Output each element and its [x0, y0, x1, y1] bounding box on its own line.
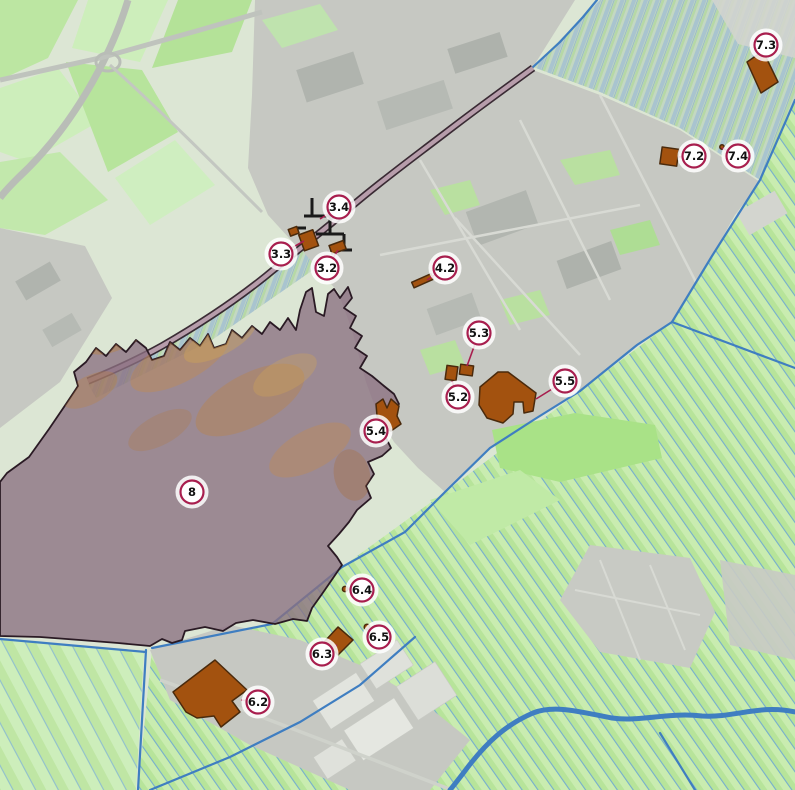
map-marker-6-4[interactable]: 6.4 — [348, 576, 376, 604]
marker-label: 6.4 — [352, 583, 372, 597]
map-marker-5-4[interactable]: 5.4 — [362, 417, 390, 445]
marker-label: 3.2 — [317, 261, 337, 275]
map-marker-5-2[interactable]: 5.2 — [444, 381, 472, 411]
map-marker-7-3[interactable]: 7.3 — [752, 31, 780, 61]
object-5-2[interactable] — [445, 365, 458, 380]
marker-label: 3.4 — [329, 200, 349, 214]
marker-label: 8 — [188, 485, 196, 499]
marker-label: 5.3 — [469, 326, 489, 340]
marker-label: 3.3 — [271, 247, 291, 261]
marker-label: 5.5 — [555, 374, 575, 388]
map-marker-8[interactable]: 8 — [178, 478, 206, 506]
object-7-2[interactable] — [660, 147, 679, 166]
map-canvas: 3.23.33.44.25.25.35.45.56.26.36.46.57.27… — [0, 0, 795, 790]
map-marker-7-4[interactable]: 7.4 — [722, 142, 752, 170]
map-marker-3-2[interactable]: 3.2 — [313, 250, 341, 282]
marker-label: 7.4 — [728, 149, 748, 163]
marker-label: 4.2 — [435, 261, 455, 275]
map-marker-4-2[interactable]: 4.2 — [427, 254, 459, 282]
map-marker-6-3[interactable]: 6.3 — [308, 640, 337, 668]
marker-label: 7.3 — [756, 38, 776, 52]
marker-label: 5.2 — [448, 390, 468, 404]
object-5-3[interactable] — [459, 364, 473, 376]
map-marker-6-5[interactable]: 6.5 — [365, 623, 393, 651]
map-marker-7-2[interactable]: 7.2 — [678, 142, 708, 170]
marker-label: 6.2 — [248, 695, 268, 709]
map-figure: 3.23.33.44.25.25.35.45.56.26.36.46.57.27… — [0, 0, 795, 790]
map-marker-6-2[interactable]: 6.2 — [241, 688, 272, 716]
marker-label: 7.2 — [684, 149, 704, 163]
marker-label: 6.5 — [369, 630, 389, 644]
marker-label: 6.3 — [312, 647, 332, 661]
marker-label: 5.4 — [366, 424, 386, 438]
